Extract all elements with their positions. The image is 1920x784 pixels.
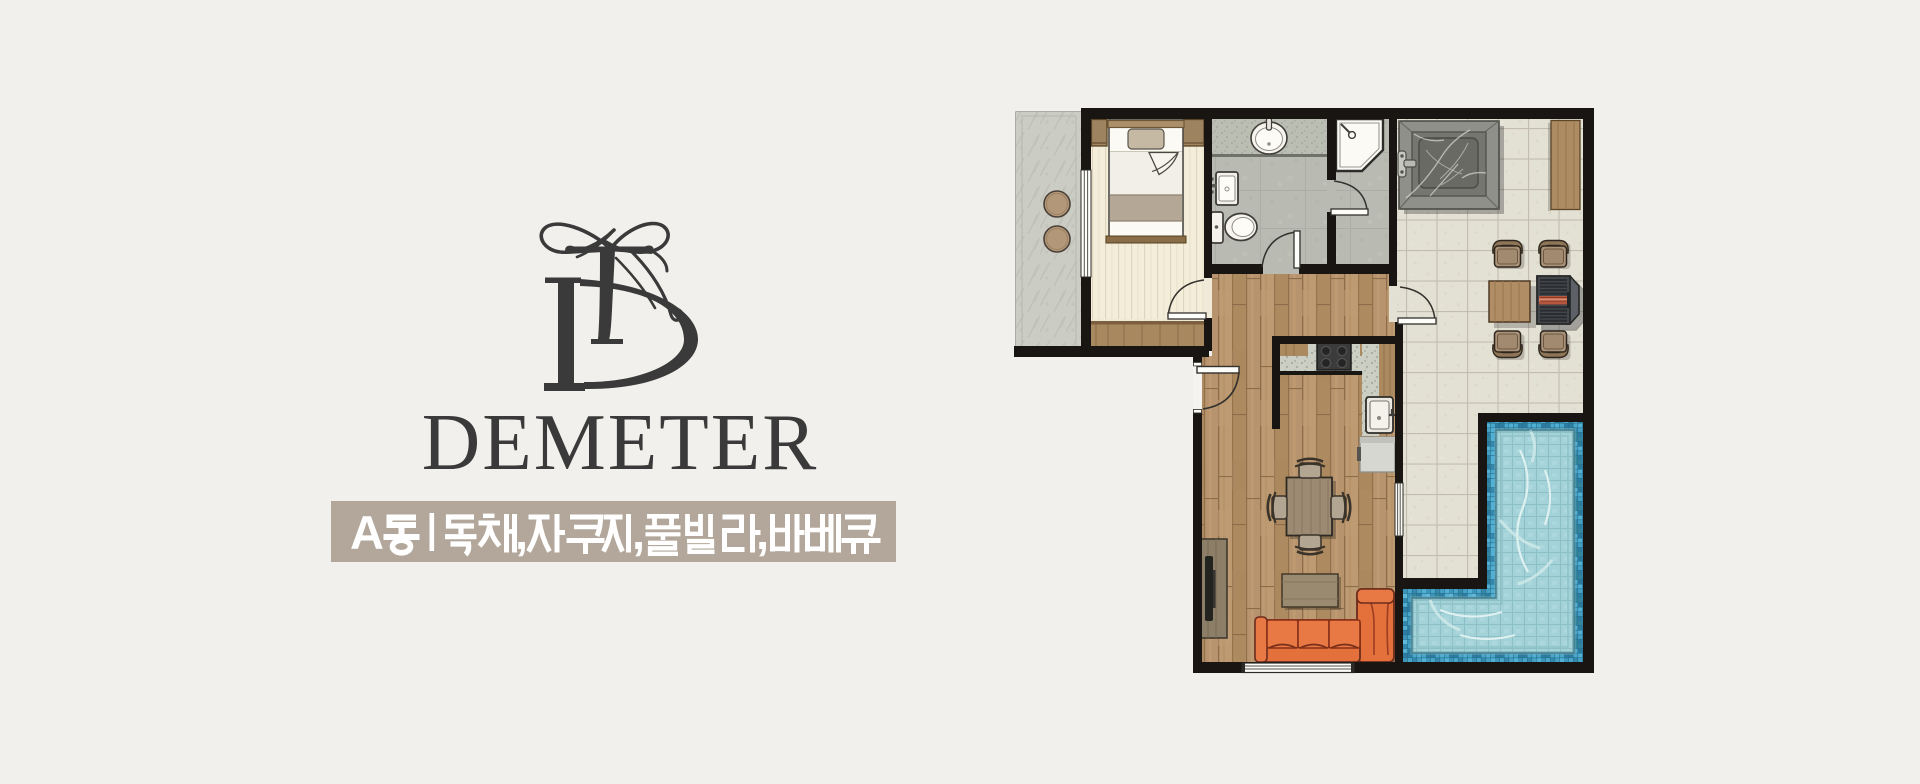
svg-text:,: , <box>515 506 528 559</box>
svg-text:,: , <box>756 506 769 559</box>
svg-text:A: A <box>350 506 384 559</box>
svg-text:,: , <box>632 506 645 559</box>
